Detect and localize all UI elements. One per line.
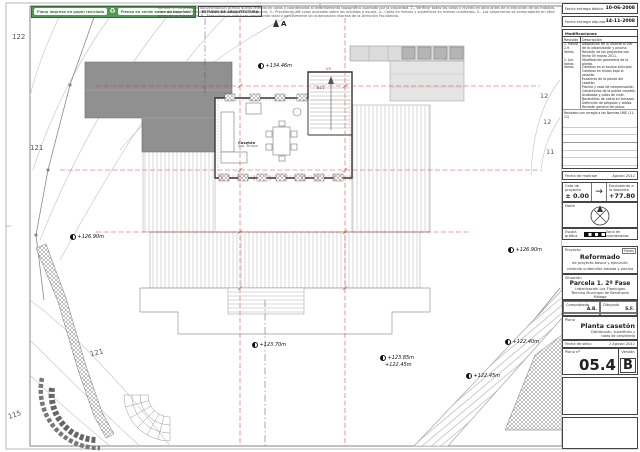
project-subtitle: de proyecto básico y ejecución <box>565 261 635 265</box>
level-marker-icon <box>380 355 386 361</box>
sheet-title-box: Plano Planta casetón Distribución, super… <box>562 316 638 340</box>
checked-by-cell: Comprobado A.B. <box>563 301 600 313</box>
project-subtitle-2: vivienda unifamiliar aislada y piscina <box>565 267 635 271</box>
building-plan <box>215 72 352 181</box>
project-box: Proyecto Fases Reformado de proyecto bás… <box>562 246 638 274</box>
cota-label: Cota de proyecto <box>565 184 589 192</box>
fases-label: Fases <box>622 248 636 254</box>
section-marker-label: A <box>281 20 286 28</box>
roof-panels <box>350 46 464 101</box>
empty-revision-rows <box>563 120 637 168</box>
cota-value: ± 0.00 <box>565 192 589 200</box>
contour-label: 12 <box>540 92 548 100</box>
lower-terrace <box>140 288 430 334</box>
project-title: Reformado <box>565 253 635 261</box>
elevation-label: +126.90m <box>508 247 542 253</box>
version-cell: Versión B <box>618 349 637 374</box>
level-marker-icon <box>508 247 514 253</box>
graphic-scale-row: Escala gráfica Zona en coordenadas <box>562 228 638 240</box>
eco-label-1: Plano impreso en papel reciclado <box>34 8 107 15</box>
project-label: Proyecto <box>565 248 581 252</box>
room-sublabel: Sup. Terraza <box>238 144 258 148</box>
north-box: Norte <box>562 202 638 228</box>
contour-label: 12 <box>543 118 551 126</box>
fecha-basico-value: 10-06-2008 <box>606 6 635 11</box>
stamp-date-row: Fecha de sello: 1 Agosto 2011 <box>562 340 638 348</box>
elevation-label: +123.85m <box>380 355 414 361</box>
datum-arrow-icon: → <box>592 183 606 201</box>
level-marker-icon <box>70 234 76 240</box>
sheet-number-cell: Plano nº 05.4 <box>563 349 618 374</box>
fan-steps <box>124 395 170 441</box>
retaining-wall-hatch-left <box>36 244 114 438</box>
sheet-subtitle-2: cotas de carpintería <box>565 334 635 338</box>
zone-label: Zona en coordenadas <box>606 230 635 238</box>
location-label: Situación <box>565 276 582 280</box>
fecha-montaje-row: Fecha de montaje Agosto 2011 <box>562 171 638 180</box>
sheet-number-label: Plano nº <box>565 350 616 354</box>
fecha-adjunto-label: Fecha entrega adjunto <box>565 20 605 24</box>
fecha-adjunto-row: Fecha entrega adjunto 14-11-2008 <box>562 16 638 27</box>
site-plan-drawing <box>0 0 640 452</box>
sheet-title: Planta casetón <box>565 322 635 330</box>
elevation-label: +122.45m <box>466 373 500 379</box>
stamp-date-label: Fecha de sello: <box>565 342 592 346</box>
cota-cell: Cota de proyecto ± 0.00 <box>563 183 592 201</box>
modifications-title: Modificaciones <box>563 30 637 37</box>
checked-by-value: A.B. <box>566 307 597 312</box>
level-marker-icon <box>466 373 472 379</box>
drawn-by-cell: Dibujado S.F. <box>600 301 637 313</box>
stair-label: B11 <box>317 85 324 90</box>
fecha-basico-label: Fecha entrega básico <box>565 7 603 11</box>
elevation-label: +134.46m <box>258 63 292 69</box>
north-label: Norte <box>565 204 575 208</box>
stamp-date-value: 1 Agosto 2011 <box>609 342 635 346</box>
drawn-by-value: S.F. <box>603 307 634 312</box>
level-marker-icon <box>258 63 264 69</box>
sheet-number-box: Plano nº 05.4 Versión B <box>562 348 638 375</box>
section-marker-icon <box>273 19 279 27</box>
elevation-label: +126.90m <box>70 234 104 240</box>
fecha-montaje-label: Fecha de montaje <box>565 174 597 178</box>
level-datum-box: Cota de proyecto ± 0.00 → Equivalente a … <box>562 182 638 202</box>
elev-value: +77.80 <box>609 192 635 200</box>
elevation-label: +123.70m <box>252 342 286 348</box>
contour-label: 122 <box>12 33 25 41</box>
level-marker-icon <box>505 339 511 345</box>
location-title: Parcela 1. 2ª Fase <box>565 280 635 287</box>
elevation-label: +122.40m <box>505 339 539 345</box>
recycle-icon: ♻ <box>109 8 115 15</box>
contour-label: 11 <box>546 148 554 156</box>
sheet-number-value: 05.4 <box>565 358 616 373</box>
level-marker-icon <box>252 342 258 348</box>
plan-notes: NOTAS: 1.- La presente documentación grá… <box>158 6 560 17</box>
graphic-scale-bar <box>584 232 606 237</box>
modifications-note: Revisado con arreglo a las Normas UNE (1… <box>563 109 637 120</box>
credits-box: Comprobado A.B. Dibujado S.F. Proyecto n… <box>562 300 638 316</box>
modifications-table: Modificaciones Revisión Descripción 1. M… <box>562 29 638 169</box>
location-line-4: Málaga <box>565 295 635 299</box>
version-value: B <box>620 358 637 373</box>
empty-box-1 <box>562 377 638 415</box>
sheet-label: Plano <box>565 318 575 322</box>
driveway-band <box>414 290 562 446</box>
dark-roof <box>85 62 232 152</box>
contour-label: 121 <box>30 144 43 152</box>
window-tag: V5 <box>326 66 331 71</box>
empty-box-2 <box>562 417 638 449</box>
title-block: Fecha entrega básico 10-06-2008 Fecha en… <box>562 3 638 449</box>
fecha-adjunto-value: 14-11-2008 <box>606 19 635 24</box>
graphic-scale-label: Escala gráfica <box>565 230 584 238</box>
elevation-cell: Equivalente a la absoluta +77.80 <box>606 183 637 201</box>
location-box: Situación Parcela 1. 2ª Fase Urbanizació… <box>562 274 638 300</box>
fecha-basico-row: Fecha entrega básico 10-06-2008 <box>562 3 638 14</box>
version-label: Versión <box>621 350 634 354</box>
fecha-montaje-value: Agosto 2011 <box>612 174 635 178</box>
elev-label: Equivalente a la absoluta <box>609 184 635 192</box>
elevation-label: +122.45m <box>385 362 412 368</box>
